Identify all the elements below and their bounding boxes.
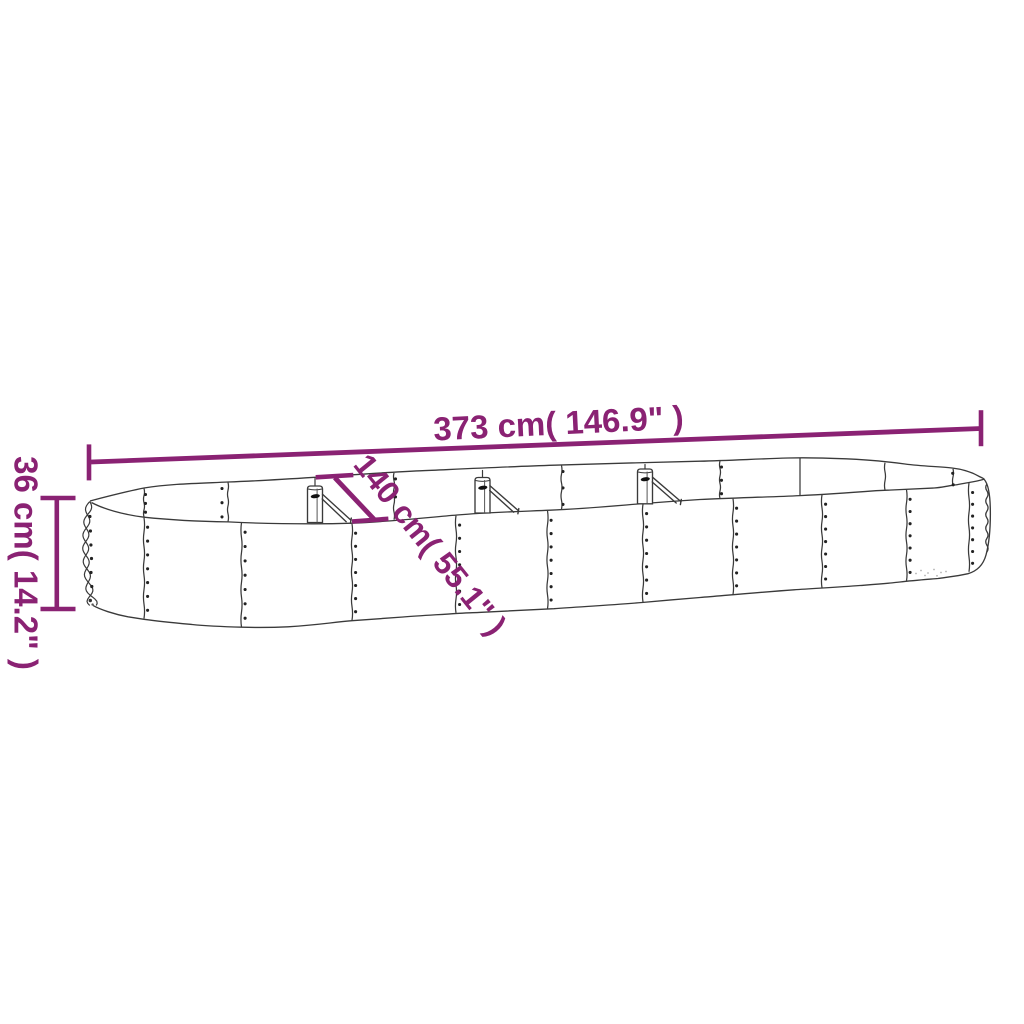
- svg-text:36 cm( 14.2" ): 36 cm( 14.2" ): [8, 456, 45, 670]
